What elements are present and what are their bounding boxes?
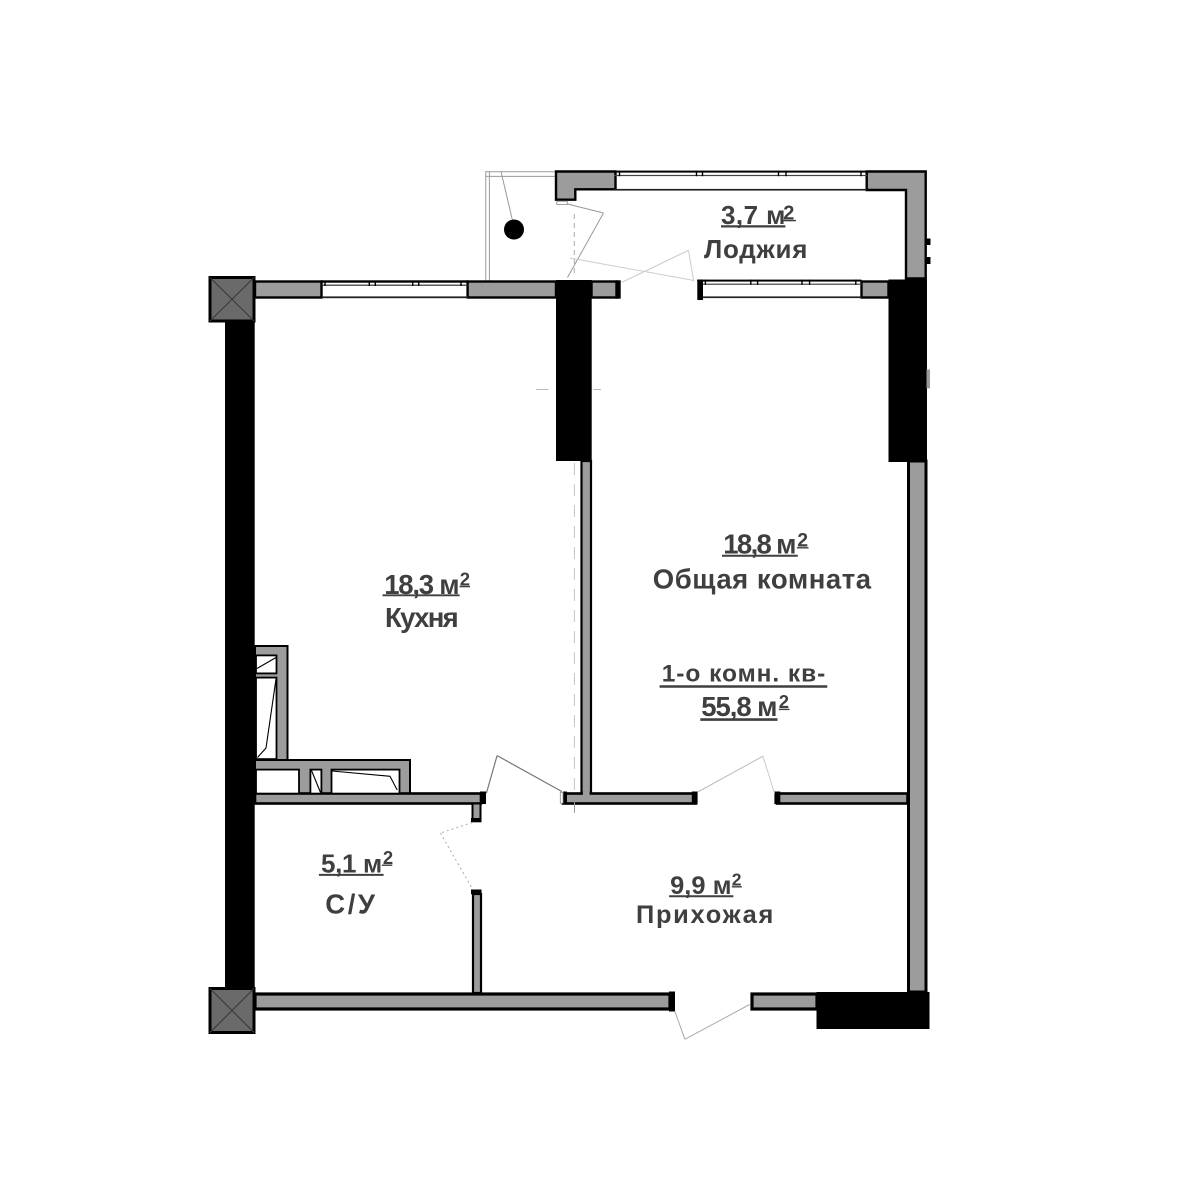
svg-text:Общая комната: Общая комната <box>653 564 872 595</box>
svg-text:Кухня: Кухня <box>385 602 459 633</box>
svg-text:55,8 м: 55,8 м <box>701 691 777 722</box>
svg-text:1-о комн. кв-: 1-о комн. кв- <box>662 661 826 688</box>
svg-text:Лоджия: Лоджия <box>704 234 807 264</box>
svg-text:С/У: С/У <box>325 889 376 920</box>
